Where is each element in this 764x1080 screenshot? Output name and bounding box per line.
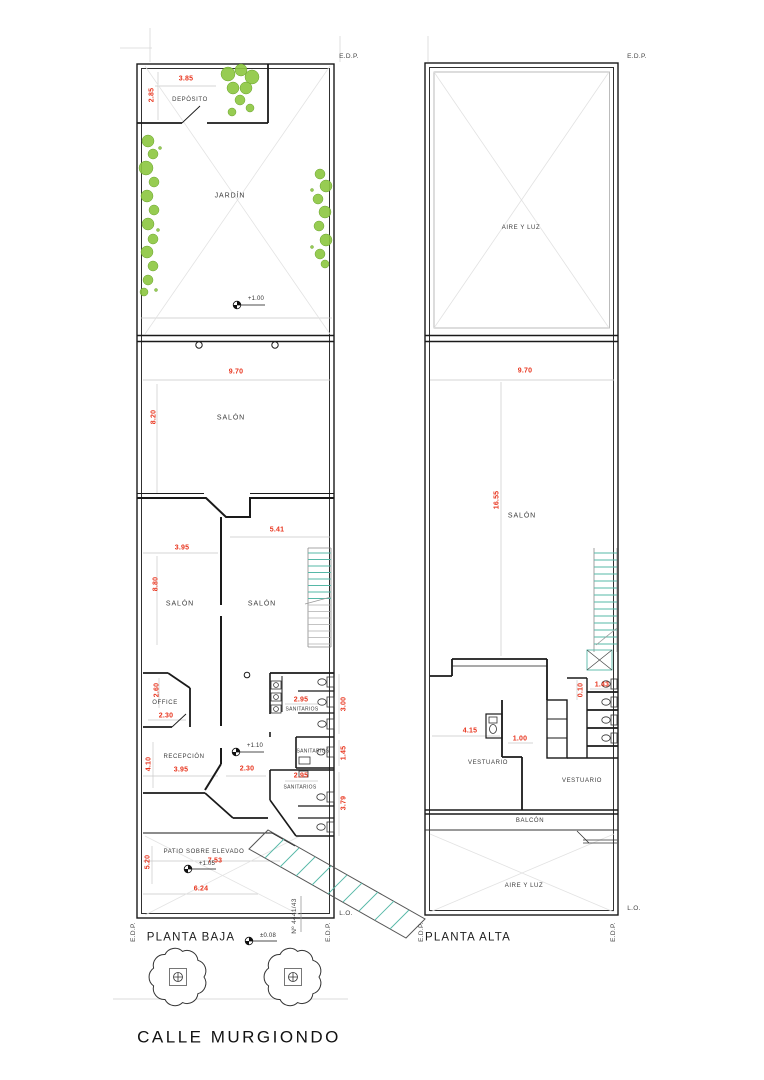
plan-title-baja: PLANTA BAJA (147, 932, 235, 944)
edp-label-alta-top: E.D.P. (627, 54, 647, 61)
dim-salon-front-width: 9.70 (229, 369, 243, 376)
dim-recepcion-width: 3.95 (174, 767, 188, 774)
planta-baja-columns (196, 342, 278, 678)
room-label-sanitarios2: SANITARIOS (297, 750, 330, 755)
dim-pasillo-width: 2.30 (240, 766, 254, 773)
dim-deposito-width: 3.85 (179, 76, 193, 83)
floor-plan-sheet: E.D.P. 3.85 2.85 DEPÓSITO JARDÍN +1.00 9… (0, 0, 764, 1080)
dim-sanitarios2-height: 1.45 (341, 746, 348, 760)
room-label-vestuario1: VESTUARIO (468, 760, 508, 766)
dim-salon-alta-height: 16.55 (494, 491, 501, 510)
planta-alta-stair (587, 548, 617, 670)
planta-baja-stair-mid (305, 548, 331, 647)
planta-alta-interior-walls (425, 336, 618, 844)
lo-label-baja: L.O. (339, 911, 352, 918)
level-value-jardin: +1.00 (248, 296, 264, 302)
plan-title-alta: PLANTA ALTA (425, 932, 511, 944)
room-label-sanitarios3: SANITARIOS (284, 786, 317, 791)
street-tree-right (264, 948, 321, 1005)
room-label-recepcion: RECEPCIÓN (163, 754, 204, 760)
planta-alta-fixtures (489, 679, 617, 743)
dim-salon-alta-width: 9.70 (518, 368, 532, 375)
room-label-sanitarios1: SANITARIOS (286, 708, 319, 713)
dim-sanitarios1-width: 2.95 (294, 697, 308, 704)
room-label-aire-luz-fondo: AIRE Y LUZ (505, 883, 543, 889)
room-label-vestuario2: VESTUARIO (562, 778, 602, 784)
edp-label-baja-bottom-left: E.D.P. (131, 922, 138, 942)
room-label-salon-mid-left: SALÓN (166, 601, 194, 608)
level-value-recepcion: +1.10 (247, 743, 263, 749)
plan-linework (0, 0, 764, 1080)
planta-baja-interior-walls (137, 64, 334, 846)
dim-deposito-height: 2.85 (149, 88, 156, 102)
dim-sanitarios3-height: 3.79 (341, 796, 348, 810)
edp-label-baja-top: E.D.P. (339, 54, 359, 61)
dim-office-width: 2.30 (159, 713, 173, 720)
dim-patio-height: 5.20 (145, 855, 152, 869)
room-label-office: OFFICE (152, 700, 178, 706)
room-label-jardin: JARDÍN (215, 193, 246, 200)
room-label-salon-mid-right: SALÓN (248, 601, 276, 608)
lo-label-alta: L.O. (627, 906, 640, 913)
room-label-patio: PATIO SOBRE ELEVADO (164, 849, 245, 855)
room-label-deposito: DEPÓSITO (172, 97, 208, 103)
dim-recepcion-height: 4.10 (146, 757, 153, 771)
guide-lines (113, 28, 428, 999)
dim-sanitarios3-width: 2.95 (294, 773, 308, 780)
dim-salon-mid-right-width: 5.41 (270, 527, 284, 534)
street-number-label: Nº 4441/43 (292, 898, 299, 933)
dim-box-width: 1.43 (595, 682, 609, 689)
dim-salon-mid-left-height: 8.80 (153, 577, 160, 591)
level-marker-jardin (233, 301, 265, 309)
dim-salon-front-height: 8.20 (151, 410, 158, 424)
dim-patio-width2: 6.24 (194, 886, 208, 893)
level-marker-recepcion (232, 748, 264, 756)
planta-baja-stair-entry (249, 830, 425, 938)
dim-vestuario-width: 4.15 (463, 728, 477, 735)
room-label-aire-luz-frente: AIRE Y LUZ (502, 225, 540, 231)
room-label-salon-alta: SALÓN (508, 513, 536, 520)
dim-salon-mid-left-width: 3.95 (175, 545, 189, 552)
dim-office-height: 2.60 (154, 683, 161, 697)
street-name-label: CALLE MURGIONDO (137, 1029, 341, 1046)
planta-baja-dim-lines (141, 72, 339, 932)
edp-label-baja-bottom-right: E.D.P. (326, 922, 333, 942)
level-value-vereda: ±0.08 (260, 933, 276, 939)
dim-box-gap: 0.10 (578, 683, 585, 697)
street-tree-left (149, 948, 206, 1005)
level-value-patio: +1.05 (199, 861, 215, 867)
room-label-balcon: BALCÓN (516, 818, 544, 824)
edp-label-alta-bottom-right: E.D.P. (611, 922, 618, 942)
dim-paso-width: 1.00 (513, 736, 527, 743)
room-label-salon-front: SALÓN (217, 415, 245, 422)
dim-sanitarios1-height: 3.00 (341, 697, 348, 711)
